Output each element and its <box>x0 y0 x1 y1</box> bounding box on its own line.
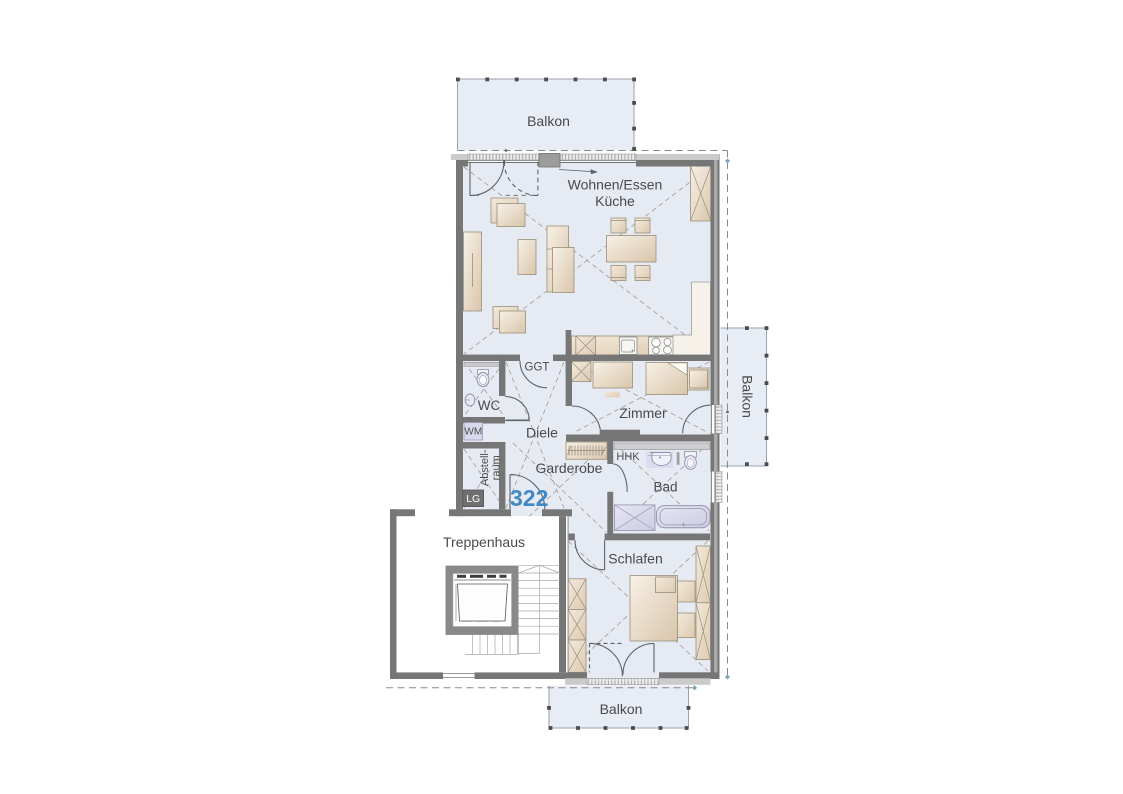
svg-text:WM: WM <box>464 427 482 438</box>
svg-text:WC: WC <box>478 398 501 413</box>
svg-text:Balkon: Balkon <box>740 375 756 418</box>
svg-text:Wohnen/Essen: Wohnen/Essen <box>568 177 663 193</box>
svg-text:322: 322 <box>510 485 548 511</box>
svg-text:Balkon: Balkon <box>527 113 570 129</box>
svg-text:Bad: Bad <box>653 480 677 495</box>
svg-text:Schlafen: Schlafen <box>608 551 662 567</box>
svg-text:LG: LG <box>466 493 480 505</box>
svg-text:Küche: Küche <box>595 193 635 209</box>
svg-text:Treppenhaus: Treppenhaus <box>443 534 525 550</box>
svg-text:Zimmer: Zimmer <box>619 405 667 421</box>
svg-text:GGT: GGT <box>525 362 550 374</box>
svg-text:Diele: Diele <box>526 425 558 441</box>
svg-text:HHK: HHK <box>616 451 640 463</box>
svg-text:Balkon: Balkon <box>600 701 643 717</box>
svg-text:Garderobe: Garderobe <box>536 460 603 476</box>
